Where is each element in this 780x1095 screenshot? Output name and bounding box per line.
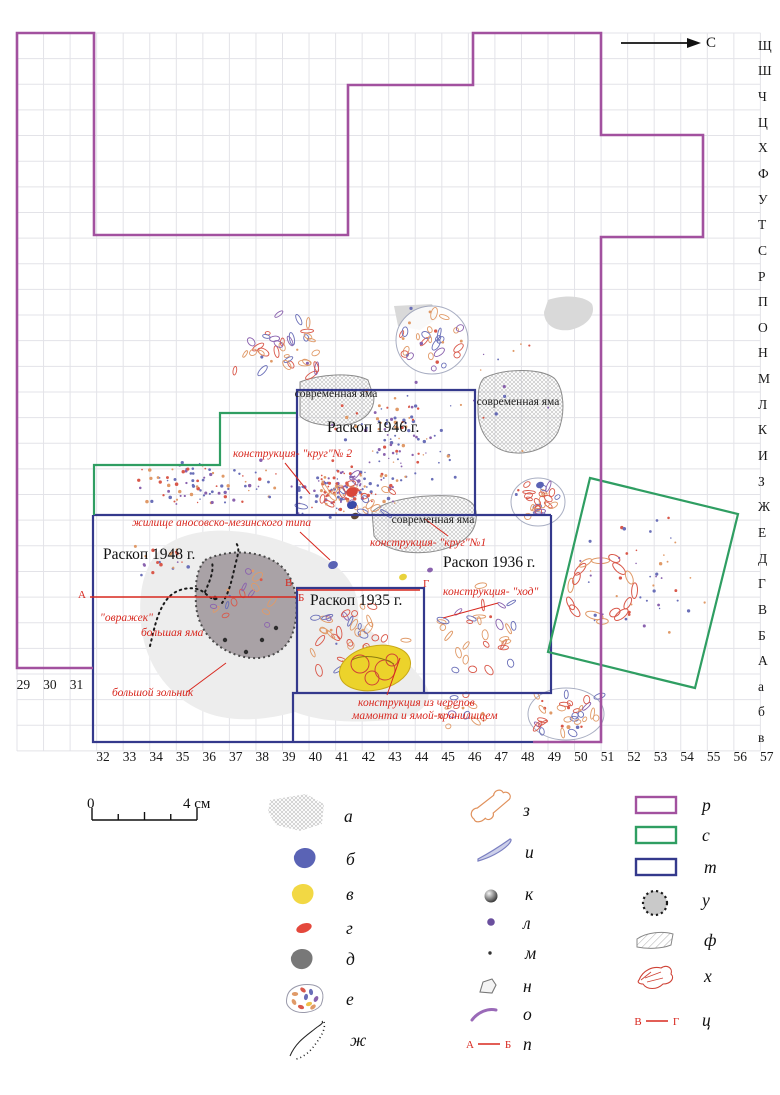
legend-big-pit-label: у (702, 890, 710, 911)
legend-green-boundary-label: с (702, 825, 710, 846)
label-raskop-1935: Раскоп 1935 г. (310, 592, 402, 610)
legend-arc-label: о (523, 1004, 532, 1025)
scale-four-label: 4 см (183, 796, 210, 813)
grid-col-number: 37 (221, 749, 251, 765)
section-letter-b: Б (298, 592, 304, 604)
legend-bone-label: з (523, 800, 530, 821)
grid-row-letter: Б (758, 628, 780, 644)
grid-col-number: 30 (35, 677, 65, 693)
annotation-bolshoy-zolnik: большой зольник (112, 687, 193, 699)
grid-col-number: 34 (141, 749, 171, 765)
legend-blue-spot-label: б (346, 849, 355, 870)
grid-row-letter: б (758, 704, 780, 720)
grid-row-letter: Т (758, 217, 780, 233)
grid-col-number: 44 (407, 749, 437, 765)
label-raskop-1936: Раскоп 1936 г. (443, 554, 535, 572)
annotation-zhilishche: жилище аносовско-мезинского типа (132, 517, 311, 529)
label-raskop-1948: Раскоп 1948 г. (103, 546, 195, 564)
grid-row-letter: О (758, 320, 780, 336)
grid-col-number: 41 (327, 749, 357, 765)
text-layer: С 0 4 см 2930313233343536373839404142434… (0, 0, 780, 1095)
legend-modern-pit-hatch-label: а (344, 806, 353, 827)
grid-row-letter: Ч (758, 89, 780, 105)
legend-sphere-label: к (525, 884, 533, 905)
grid-col-number: 46 (460, 749, 490, 765)
legend-tusk-label: и (525, 842, 534, 863)
grid-col-number: 57 (752, 749, 780, 765)
grid-row-letter: Ж (758, 499, 780, 515)
grid-row-letter: К (758, 422, 780, 438)
annotation-konstrukcia-cherepov-2: мамонта и ямой-хранилищем (352, 710, 498, 722)
legend-red-spot-label: г (346, 918, 353, 939)
grid-col-number: 38 (247, 749, 277, 765)
grid-col-number: 52 (619, 749, 649, 765)
label-modern-pit-3: современная яма (390, 514, 476, 526)
grid-row-letter: А (758, 653, 780, 669)
grid-col-number: 32 (88, 749, 118, 765)
legend-ravine-label: ж (350, 1030, 366, 1051)
legend-dot-large-label: л (523, 913, 531, 934)
grid-row-letter: в (758, 730, 780, 746)
annotation-khod: конструкция- "ход" (443, 586, 538, 598)
grid-row-letter: С (758, 243, 780, 259)
scale-zero-label: 0 (87, 796, 95, 813)
excavation-plan-figure: АБВГ С 0 4 см 29303132333435363738394041… (0, 0, 780, 1095)
grid-row-letter: Ш (758, 63, 780, 79)
grid-col-number: 39 (274, 749, 304, 765)
legend-navy-boundary-label: т (704, 857, 717, 878)
annotation-krug-1: конструкция- "круг"№1 (370, 537, 486, 549)
annotation-konstrukcia-cherepov-1: конструкция из черепов (358, 697, 475, 709)
legend-section-vg-label: ц (702, 1010, 711, 1031)
label-raskop-1946: Раскоп 1946 г. (327, 419, 419, 437)
grid-col-number: 36 (194, 749, 224, 765)
grid-row-letter: У (758, 192, 780, 208)
section-letter-g: Г (423, 578, 429, 590)
grid-col-number: 45 (433, 749, 463, 765)
legend-yellow-spot-label: в (346, 884, 354, 905)
grid-row-letter: Х (758, 140, 780, 156)
grid-row-letter: а (758, 679, 780, 695)
label-modern-pit-1: современная яма (293, 388, 379, 400)
grid-col-number: 47 (486, 749, 516, 765)
legend-dot-small-label: м (525, 943, 536, 964)
legend-purple-boundary-label: р (702, 795, 711, 816)
grid-row-letter: П (758, 294, 780, 310)
grid-col-number: 56 (725, 749, 755, 765)
grid-row-letter: Г (758, 576, 780, 592)
legend-mosaic-label: е (346, 989, 354, 1010)
grid-row-letter: З (758, 474, 780, 490)
section-letter-a: А (78, 589, 86, 601)
annotation-krug-2: конструкция- "круг"№ 2 (233, 448, 352, 460)
grid-row-letter: Ф (758, 166, 780, 182)
grid-col-number: 51 (592, 749, 622, 765)
legend-dark-spot-label: д (346, 949, 355, 970)
grid-col-number: 31 (61, 677, 91, 693)
grid-col-number: 54 (672, 749, 702, 765)
annotation-ovrazhek: "овражек" (100, 612, 153, 624)
grid-row-letter: Ц (758, 115, 780, 131)
grid-col-number: 33 (115, 749, 145, 765)
grid-col-number: 43 (380, 749, 410, 765)
grid-col-number: 35 (168, 749, 198, 765)
label-modern-pit-2: современная яма (475, 396, 561, 408)
grid-row-letter: М (758, 371, 780, 387)
grid-row-letter: Р (758, 269, 780, 285)
grid-row-letter: Л (758, 397, 780, 413)
legend-stone-label: н (523, 976, 532, 997)
legend-hatched-area-label: ф (704, 930, 716, 951)
grid-col-number: 29 (8, 677, 38, 693)
north-label: С (706, 35, 716, 52)
grid-row-letter: Щ (758, 38, 780, 54)
grid-row-letter: Н (758, 345, 780, 361)
grid-row-letter: И (758, 448, 780, 464)
grid-col-number: 49 (539, 749, 569, 765)
legend-section-ab-label: п (523, 1034, 532, 1055)
grid-row-letter: Е (758, 525, 780, 541)
annotation-bolshaya-yama: большая яма (141, 627, 203, 639)
grid-row-letter: В (758, 602, 780, 618)
grid-col-number: 48 (513, 749, 543, 765)
grid-col-number: 50 (566, 749, 596, 765)
grid-col-number: 53 (646, 749, 676, 765)
grid-col-number: 40 (300, 749, 330, 765)
grid-col-number: 42 (354, 749, 384, 765)
grid-col-number: 55 (699, 749, 729, 765)
grid-row-letter: Д (758, 551, 780, 567)
section-letter-v: В (285, 577, 292, 589)
legend-skull-label: х (704, 966, 712, 987)
